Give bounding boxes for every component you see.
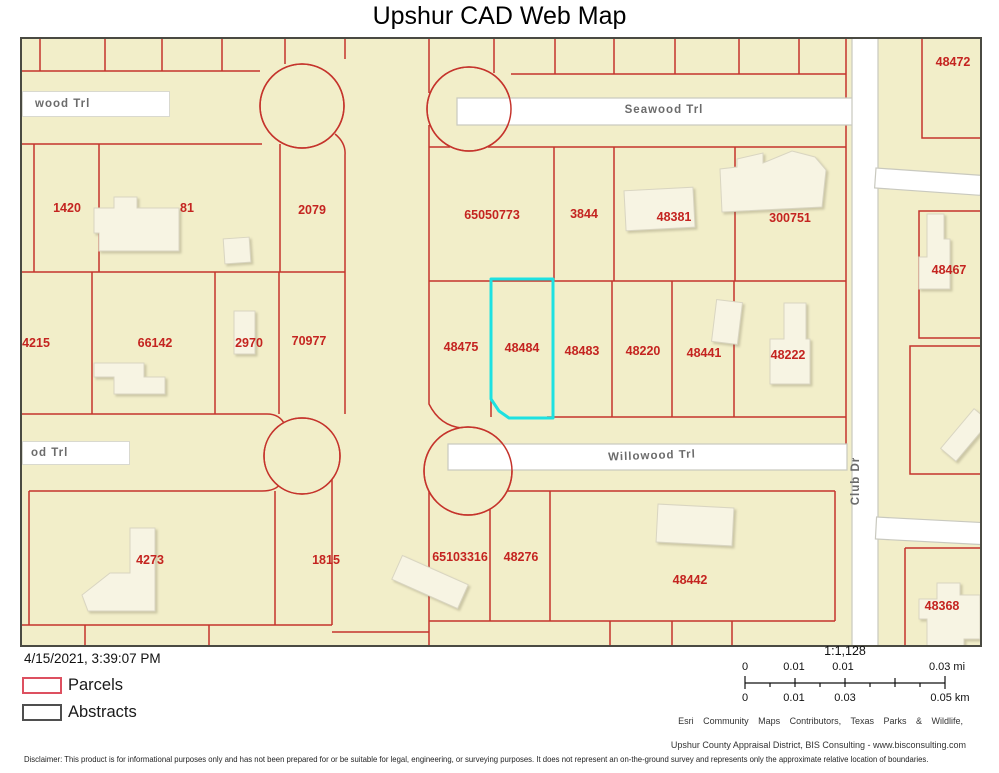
parcel-label-300751: 300751	[769, 211, 811, 225]
parcel-label-1420: 1420	[53, 201, 81, 215]
print-page: Upshur CAD Web Map	[0, 0, 999, 773]
parcel-label-48220: 48220	[626, 344, 661, 358]
scale-km-tick: 0.03	[834, 692, 855, 704]
export-timestamp: 4/15/2021, 3:39:07 PM	[24, 651, 161, 666]
attribution-line1: Esri Community Maps Contributors, Texas …	[678, 716, 963, 726]
scale-km-tick: 0	[742, 692, 748, 704]
parcel-label-2970: 2970	[235, 336, 263, 350]
street-label-club-dr: Club Dr	[850, 436, 864, 526]
parcel-label-48483: 48483	[565, 344, 600, 358]
street-label-wood-trl: wood Trl	[22, 91, 170, 117]
parcel-label-48276: 48276	[504, 550, 539, 564]
legend-swatch-parcels	[22, 677, 62, 694]
legend-label-abstracts: Abstracts	[68, 703, 137, 722]
parcel-label-65103316: 65103316	[432, 550, 488, 564]
scale-mi-tick: 0.01	[832, 661, 853, 673]
parcel-label-48381: 48381	[657, 210, 692, 224]
parcel-label-4273: 4273	[136, 553, 164, 567]
parcel-label-66142: 66142	[138, 336, 173, 350]
parcel-label-3844: 3844	[570, 207, 598, 221]
parcel-label-2079: 2079	[298, 203, 326, 217]
parcel-label-48467: 48467	[932, 263, 967, 277]
parcel-label-4215: 4215	[22, 336, 50, 350]
attribution-line2: Upshur County Appraisal District, BIS Co…	[671, 740, 966, 750]
street-label-willowood-trl: Willowood Trl	[562, 447, 742, 465]
parcel-label-81: 81	[180, 201, 194, 215]
parcel-label-48368: 48368	[925, 599, 960, 613]
map-title: Upshur CAD Web Map	[0, 2, 999, 31]
legend-swatch-abstracts	[22, 704, 62, 721]
scale-mi-tick: 0.03 mi	[929, 661, 965, 673]
parcel-label-48472: 48472	[936, 55, 971, 69]
scale-mi-tick: 0	[742, 661, 748, 673]
scale-mi-tick: 0.01	[783, 661, 804, 673]
disclaimer-text: Disclaimer: This product is for informat…	[24, 754, 928, 764]
parcel-label-48484: 48484	[505, 341, 540, 355]
parcel-label-70977: 70977	[292, 334, 327, 348]
street-label-seawood-trl: Seawood Trl	[584, 104, 744, 116]
parcel-label-48442: 48442	[673, 573, 708, 587]
scale-km-tick: 0.01	[783, 692, 804, 704]
map-canvas: wood Trl Seawood Trl od Trl Willowood Tr…	[20, 37, 982, 647]
parcel-label-48441: 48441	[687, 346, 722, 360]
scale-ruler	[700, 675, 999, 690]
street-label-od-trl: od Trl	[22, 441, 130, 465]
scale-km-tick: 0.05 km	[930, 692, 969, 704]
scale-ratio: 1:1,128	[700, 644, 990, 658]
parcel-label-65050773: 65050773	[464, 208, 520, 222]
parcel-label-48222: 48222	[771, 348, 806, 362]
map-labels: wood Trl Seawood Trl od Trl Willowood Tr…	[22, 39, 980, 645]
scale-bar: 1:1,128 0 0.01 0.01 0.03 mi 0 0.01 0.03 …	[700, 644, 999, 714]
parcel-label-48475: 48475	[444, 340, 479, 354]
parcel-label-1815: 1815	[312, 553, 340, 567]
legend-label-parcels: Parcels	[68, 676, 123, 695]
